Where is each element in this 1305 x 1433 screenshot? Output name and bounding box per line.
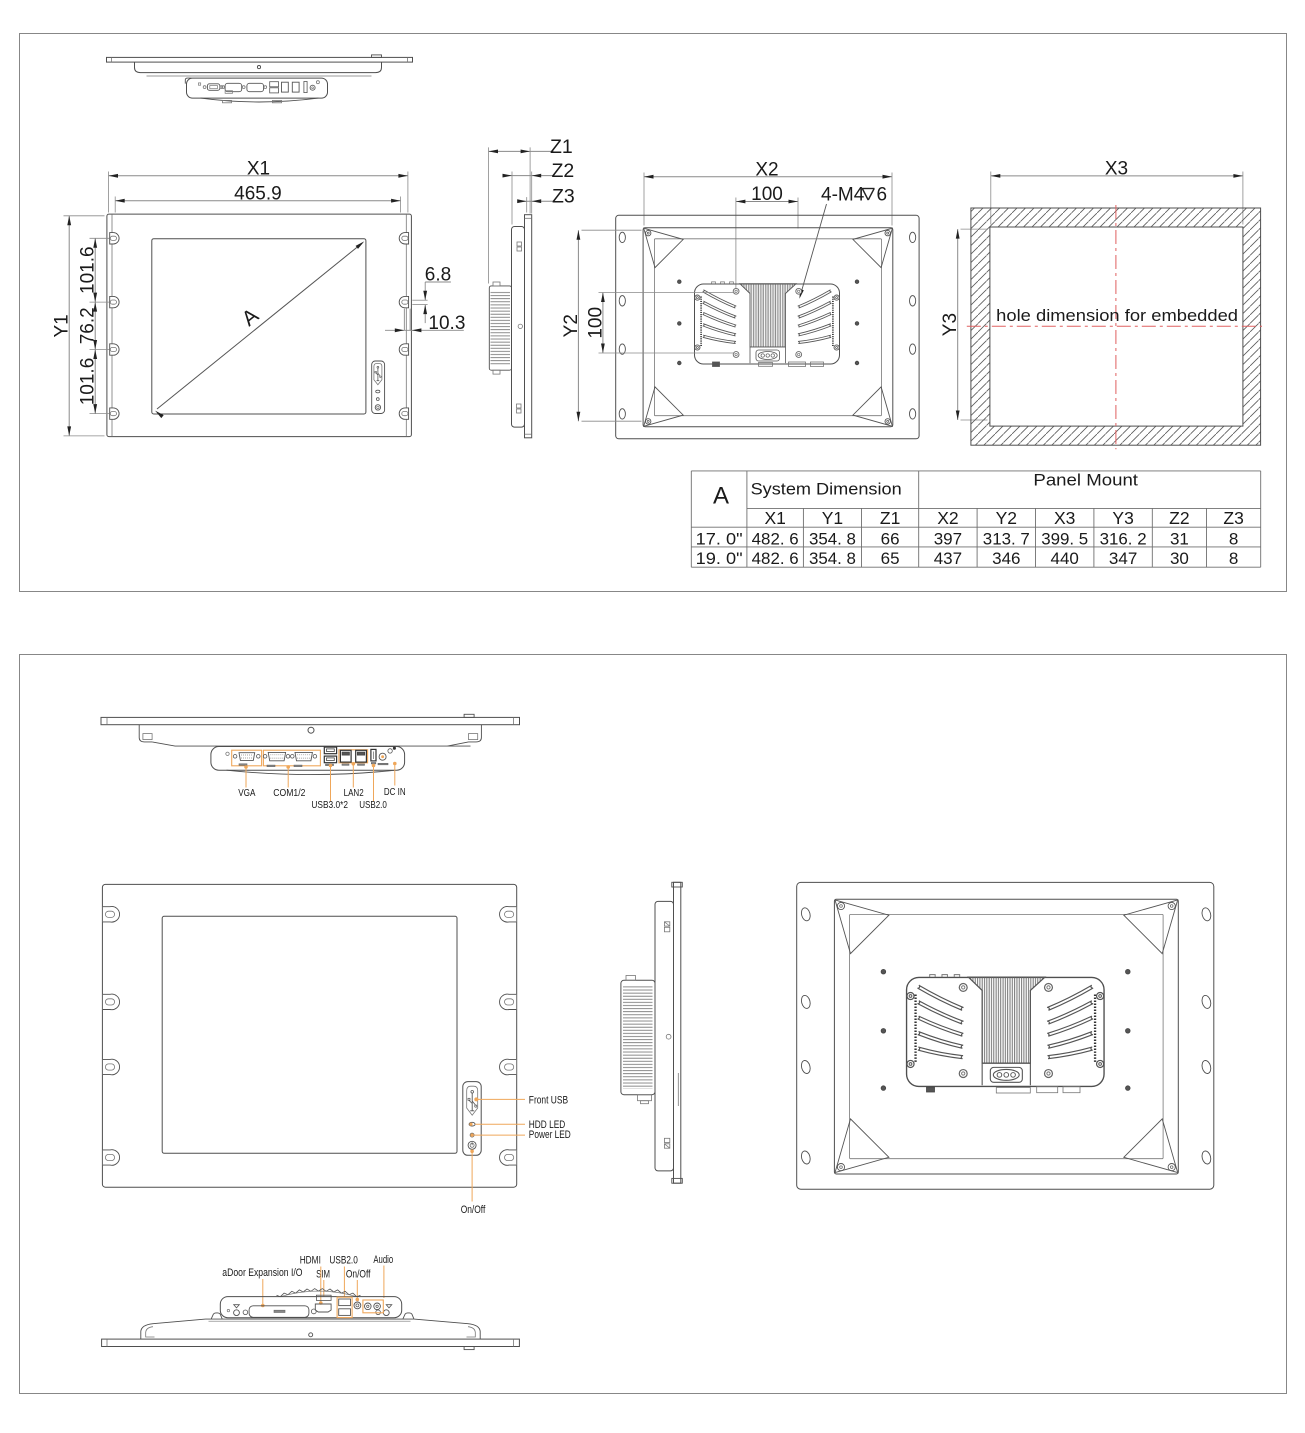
svg-text:6.8: 6.8 bbox=[425, 265, 451, 286]
svg-text:USB2.0: USB2.0 bbox=[359, 799, 387, 811]
svg-text:X1: X1 bbox=[247, 159, 270, 180]
svg-text:Y2: Y2 bbox=[561, 314, 582, 337]
svg-text:LAN2: LAN2 bbox=[344, 787, 364, 799]
svg-text:316. 2: 316. 2 bbox=[1100, 529, 1147, 548]
svg-text:Z1: Z1 bbox=[880, 508, 900, 528]
svg-text:4-M4: 4-M4 bbox=[821, 184, 865, 205]
svg-text:System Dimension: System Dimension bbox=[751, 480, 902, 499]
svg-text:Y3: Y3 bbox=[940, 313, 961, 336]
svg-text:8: 8 bbox=[1229, 529, 1238, 548]
svg-text:100: 100 bbox=[585, 307, 606, 339]
svg-text:8: 8 bbox=[1229, 549, 1238, 568]
svg-text:76.2: 76.2 bbox=[78, 307, 99, 344]
svg-text:On/Off: On/Off bbox=[461, 1204, 486, 1216]
svg-text:Audio: Audio bbox=[373, 1254, 393, 1266]
svg-text:Power LED: Power LED bbox=[529, 1129, 571, 1141]
svg-text:347: 347 bbox=[1109, 549, 1137, 568]
svg-text:aDoor Expansion I/O: aDoor Expansion I/O bbox=[222, 1267, 302, 1279]
svg-text:354. 8: 354. 8 bbox=[809, 549, 856, 568]
svg-text:A: A bbox=[713, 483, 729, 510]
svg-text:440: 440 bbox=[1051, 549, 1079, 568]
svg-text:COM1/2: COM1/2 bbox=[273, 787, 305, 799]
svg-text:Front USB: Front USB bbox=[529, 1094, 568, 1106]
svg-text:6: 6 bbox=[877, 184, 888, 205]
svg-text:19. 0": 19. 0" bbox=[696, 549, 743, 568]
svg-text:Z2: Z2 bbox=[1169, 508, 1189, 528]
svg-text:Y2: Y2 bbox=[996, 508, 1017, 528]
svg-text:346: 346 bbox=[992, 549, 1020, 568]
svg-text:Z1: Z1 bbox=[550, 136, 573, 158]
svg-text:USB3.0*2: USB3.0*2 bbox=[311, 799, 348, 811]
svg-text:399. 5: 399. 5 bbox=[1041, 529, 1088, 548]
svg-text:100: 100 bbox=[751, 184, 783, 205]
svg-text:397: 397 bbox=[934, 529, 962, 548]
svg-text:482. 6: 482. 6 bbox=[752, 529, 799, 548]
svg-text:Panel Mount: Panel Mount bbox=[1033, 471, 1138, 489]
svg-text:17. 0": 17. 0" bbox=[696, 529, 743, 548]
svg-text:X1: X1 bbox=[764, 508, 785, 528]
svg-text:X3: X3 bbox=[1105, 159, 1128, 180]
svg-text:X2: X2 bbox=[755, 159, 778, 180]
svg-text:101.6: 101.6 bbox=[78, 246, 99, 294]
svg-text:On/Off: On/Off bbox=[346, 1268, 371, 1280]
svg-text:Y1: Y1 bbox=[822, 508, 843, 528]
svg-text:DC IN: DC IN bbox=[384, 786, 406, 798]
svg-text:Y3: Y3 bbox=[1112, 508, 1133, 528]
svg-text:30: 30 bbox=[1170, 549, 1189, 568]
svg-text:hole dimension for embedded: hole dimension for embedded bbox=[996, 306, 1238, 325]
svg-text:Z3: Z3 bbox=[552, 186, 575, 208]
svg-text:465.9: 465.9 bbox=[234, 184, 282, 205]
svg-text:31: 31 bbox=[1170, 529, 1189, 548]
svg-text:313. 7: 313. 7 bbox=[983, 529, 1030, 548]
svg-text:482. 6: 482. 6 bbox=[752, 549, 799, 568]
svg-text:437: 437 bbox=[934, 549, 962, 568]
svg-text:USB2.0: USB2.0 bbox=[329, 1255, 357, 1267]
svg-text:Z3: Z3 bbox=[1223, 508, 1243, 528]
svg-text:VGA: VGA bbox=[238, 787, 255, 799]
svg-text:HDMI: HDMI bbox=[300, 1255, 321, 1267]
svg-text:10.3: 10.3 bbox=[428, 313, 465, 334]
svg-text:X3: X3 bbox=[1054, 508, 1075, 528]
svg-text:Y1: Y1 bbox=[52, 314, 73, 337]
svg-text:SIM: SIM bbox=[316, 1268, 330, 1280]
svg-text:Z2: Z2 bbox=[552, 160, 575, 182]
svg-text:354. 8: 354. 8 bbox=[809, 529, 856, 548]
svg-text:65: 65 bbox=[881, 549, 900, 568]
svg-text:101.6: 101.6 bbox=[78, 358, 99, 406]
svg-text:66: 66 bbox=[881, 529, 900, 548]
svg-text:X2: X2 bbox=[937, 508, 958, 528]
